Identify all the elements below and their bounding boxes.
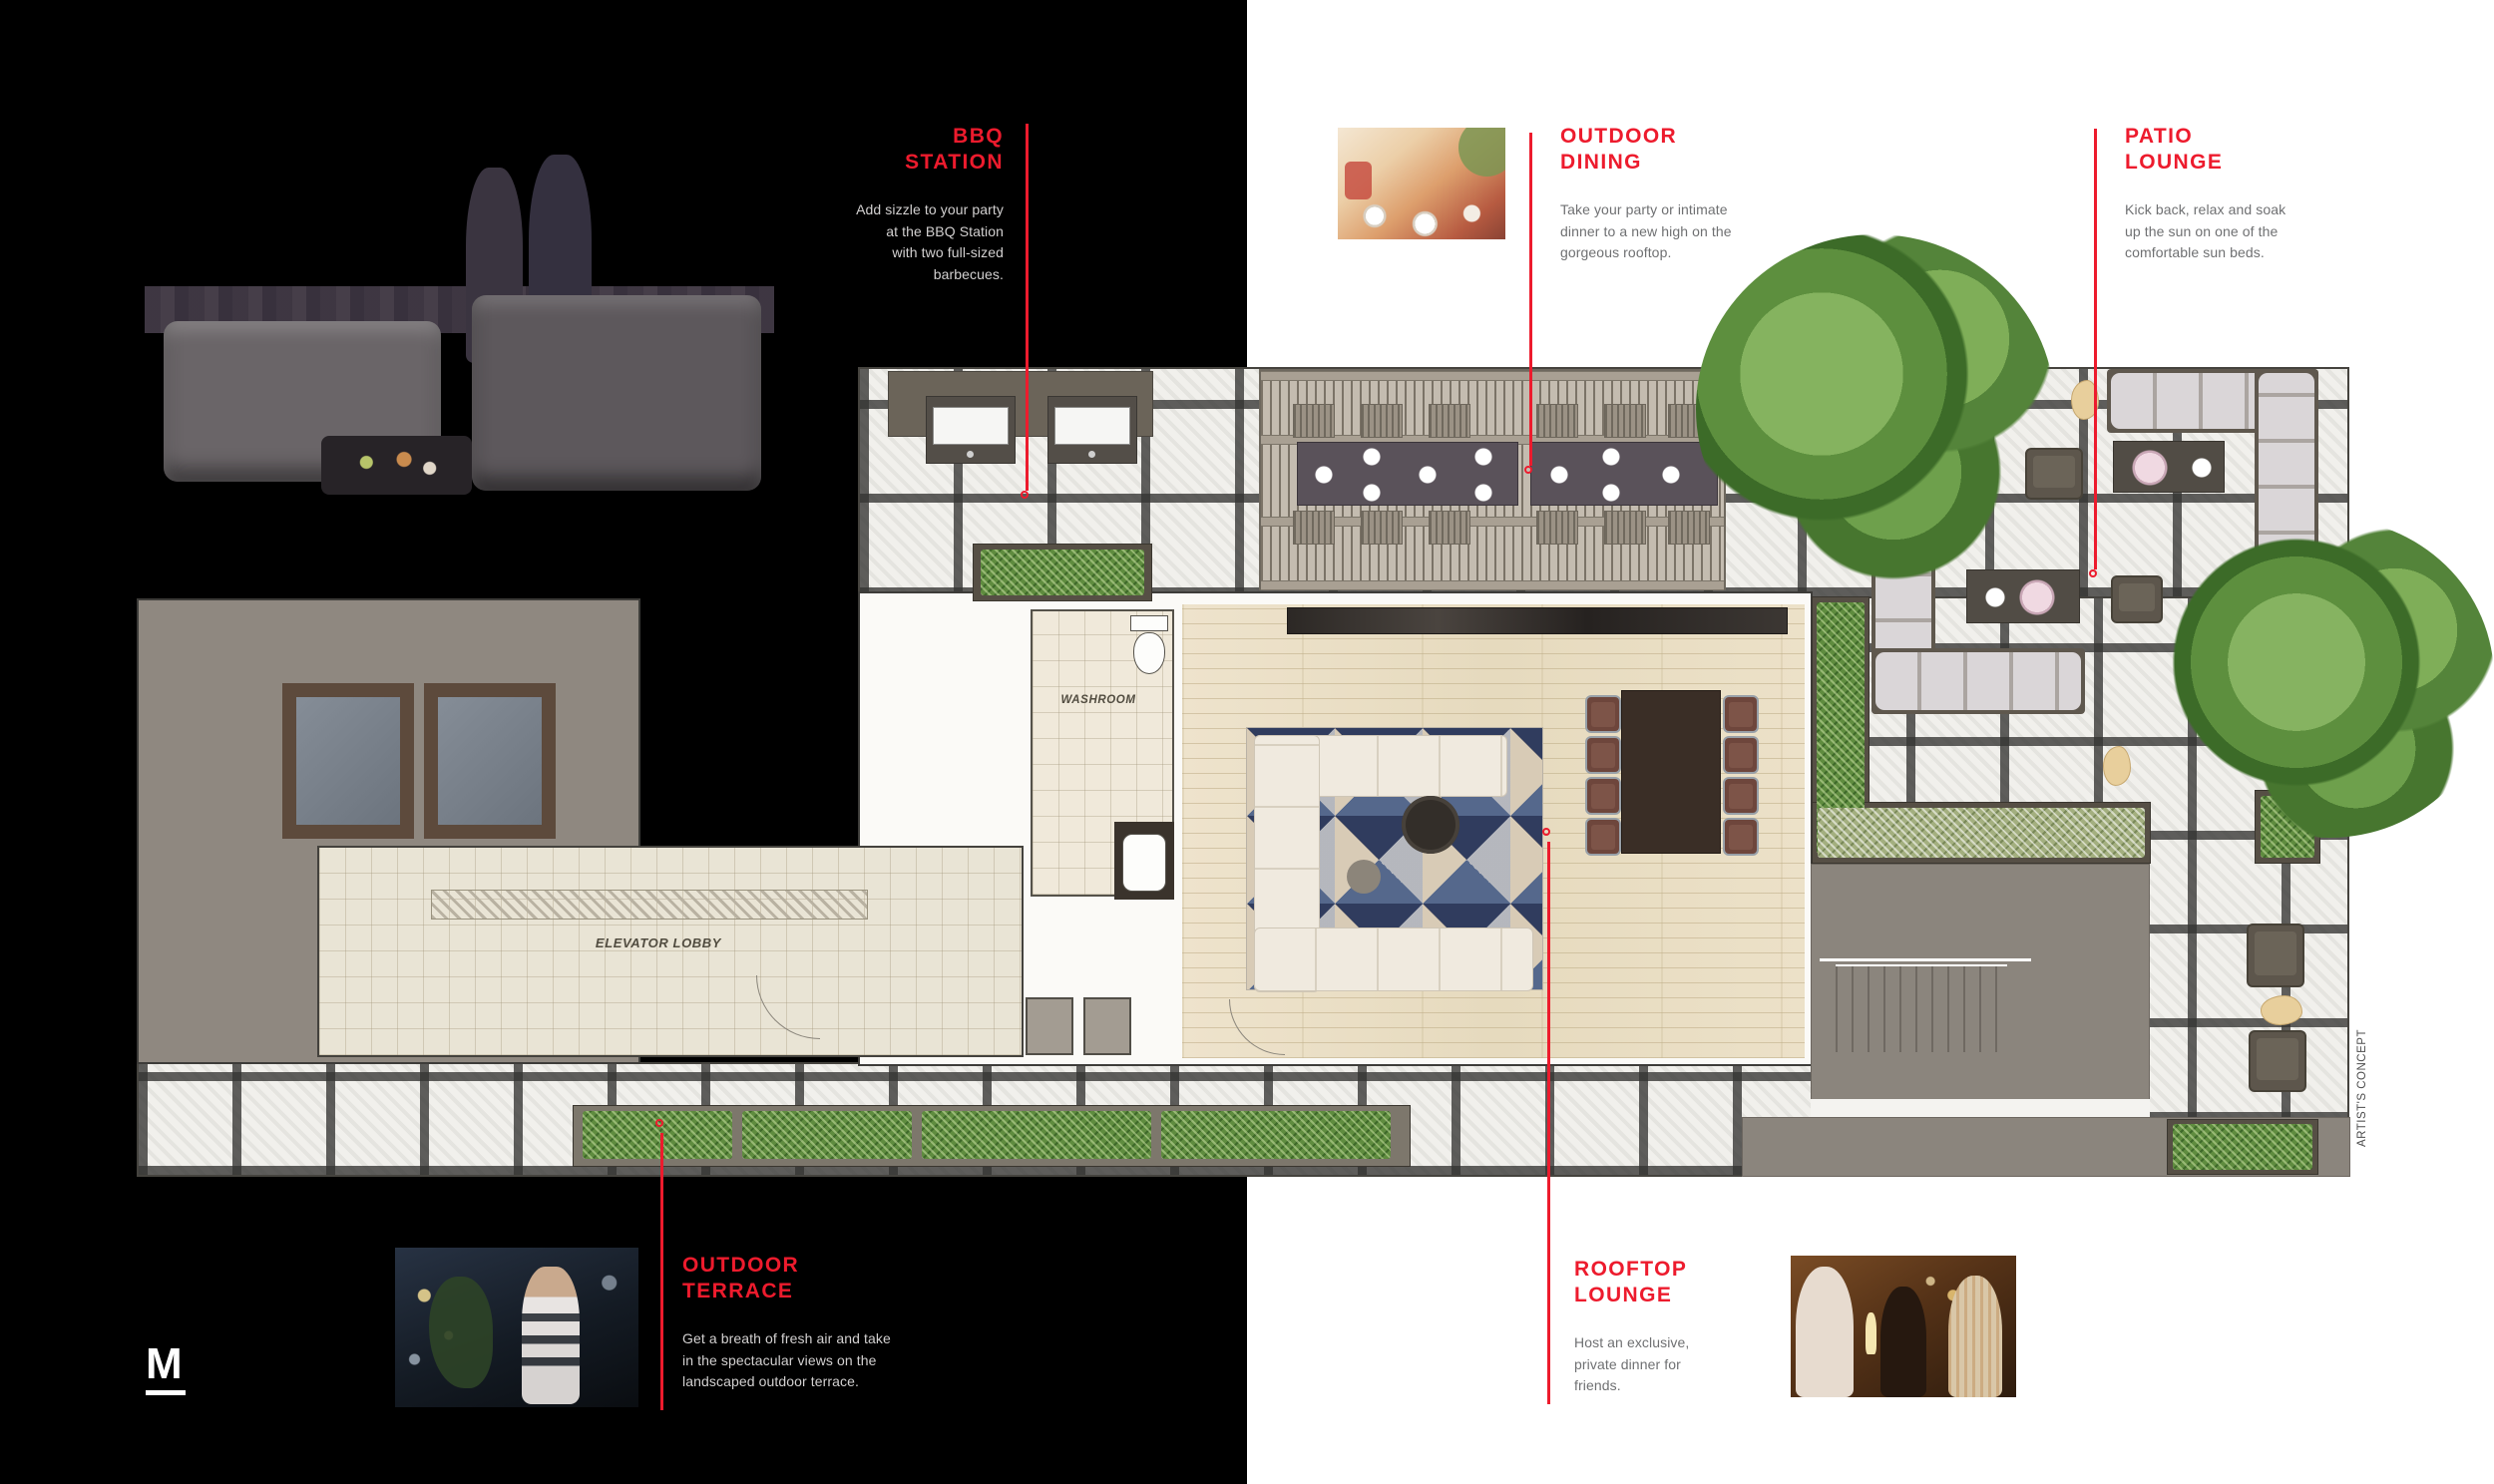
dining-chair [1587, 697, 1619, 731]
callout-title: ROOFTOP LOUNGE [1574, 1257, 1774, 1308]
artists-concept-note: ARTIST'S CONCEPT [2356, 1029, 2368, 1147]
toilet-tank [1130, 615, 1168, 631]
patio-sofa [1871, 648, 2085, 714]
planter-hedge [1161, 1111, 1391, 1159]
pergola-chair [1429, 404, 1470, 438]
bbq-grill-lid [933, 407, 1009, 445]
pergola-chair [1668, 511, 1710, 545]
dining-chair [1725, 697, 1757, 731]
paving-gap [1811, 1099, 2150, 1119]
brochure-page: ELEVATOR LOBBY WASHROOM [0, 0, 2494, 1484]
callout-endpoint [1524, 466, 1532, 474]
outdoor-terrace-photo [395, 1248, 638, 1407]
storage-room [1026, 997, 1073, 1055]
dining-chair [1725, 779, 1757, 813]
patio-armchair [2247, 924, 2304, 987]
pergola-dining-table [1297, 442, 1518, 506]
patio-table [1966, 569, 2080, 623]
dining-chair [1725, 738, 1757, 772]
callout-endpoint [1021, 491, 1029, 499]
callout-bbq-station: BBQ STATION Add sizzle to your party at … [788, 124, 1004, 285]
washroom-label: WASHROOM [1034, 694, 1163, 706]
planter-hedge [2173, 1124, 2312, 1170]
bbq-grill [1047, 396, 1137, 464]
callout-endpoint [2089, 569, 2097, 577]
flowering-hedge [1818, 808, 2145, 858]
side-stool [2261, 995, 2302, 1025]
pergola-chair [1293, 404, 1335, 438]
bbq-grill-lid [1054, 407, 1130, 445]
callout-endpoint [655, 1119, 663, 1127]
pergola-chair [1604, 404, 1646, 438]
brand-logo-underline [146, 1390, 186, 1395]
pergola-beam [1261, 371, 1724, 381]
callout-title: PATIO LOUNGE [2125, 124, 2309, 176]
callout-outdoor-dining: OUTDOOR DINING Take your party or intima… [1560, 124, 1750, 264]
photo-coffee-table [321, 436, 472, 496]
coffee-table-round [1402, 796, 1459, 854]
roof-edge-line [1820, 958, 2031, 961]
kitchen-counter [1287, 607, 1788, 634]
photo-figure [1948, 1276, 2002, 1397]
outdoor-dining-photo [1338, 128, 1505, 239]
callout-leader-line [1026, 124, 1029, 491]
planter-hedge [981, 550, 1144, 595]
dining-chair [1587, 779, 1619, 813]
photo-sofa [472, 295, 761, 491]
callout-body: Kick back, relax and soak up the sun on … [2125, 199, 2309, 264]
pergola-beam [1261, 580, 1724, 590]
photo-plant [429, 1277, 492, 1388]
photo-figure [1796, 1267, 1855, 1397]
toilet-bowl [1133, 632, 1165, 674]
photo-chair [1345, 162, 1372, 199]
photo-wine-glass [1866, 1312, 1876, 1355]
callout-rooftop-lounge: ROOFTOP LOUNGE Host an exclusive, privat… [1574, 1257, 1774, 1397]
callout-leader-line [660, 1133, 663, 1410]
dining-chair [1587, 738, 1619, 772]
washroom-sink [1122, 834, 1166, 892]
pergola-chair [1361, 511, 1403, 545]
bbq-grill-knob [1088, 451, 1095, 458]
pergola-chair [1536, 511, 1578, 545]
elevator-lobby-label: ELEVATOR LOBBY [559, 935, 758, 950]
tree-canopy [2165, 519, 2494, 838]
planter-hedge [742, 1111, 912, 1159]
callout-title: BBQ STATION [788, 124, 1004, 176]
callout-patio-lounge: PATIO LOUNGE Kick back, relax and soak u… [2125, 124, 2309, 264]
callout-outdoor-terrace: OUTDOOR TERRACE Get a breath of fresh ai… [682, 1253, 942, 1393]
dining-chair [1725, 820, 1757, 854]
staircase [1836, 964, 2007, 1052]
callout-body: Take your party or intimate dinner to a … [1560, 199, 1750, 264]
dining-table [1621, 690, 1721, 854]
sectional-sofa-arm [1254, 927, 1533, 991]
dining-chair [1587, 820, 1619, 854]
floor-pouf [2103, 746, 2131, 786]
pergola-chair [1361, 404, 1403, 438]
callout-leader-line [2094, 129, 2097, 569]
photo-figure [522, 1267, 581, 1404]
bbq-grill-knob [967, 451, 974, 458]
roof-deck [1811, 864, 2150, 1103]
pergola-chair [1604, 511, 1646, 545]
photo-figure [1880, 1287, 1925, 1397]
pergola-chair [1429, 511, 1470, 545]
photo-plant [1458, 128, 1505, 177]
callout-body: Add sizzle to your party at the BBQ Stat… [788, 199, 1004, 285]
callout-body: Get a breath of fresh air and take in th… [682, 1328, 942, 1393]
rooftop-sunset-photo [145, 100, 774, 525]
pergola-dining-table [1530, 442, 1718, 506]
sofa-cushions [1875, 652, 2081, 710]
patio-table [2113, 441, 2225, 493]
callout-title: OUTDOOR TERRACE [682, 1253, 942, 1304]
callout-body: Host an exclusive, private dinner for fr… [1574, 1332, 1774, 1397]
callout-leader-line [1529, 133, 1532, 466]
tree-canopy [1696, 234, 2055, 583]
callout-endpoint [1542, 828, 1550, 836]
storage-room [1083, 997, 1131, 1055]
brand-logo-m: M [146, 1344, 183, 1384]
rooftop-lounge-photo [1791, 1256, 2016, 1397]
callout-leader-line [1547, 842, 1550, 1404]
pergola-chair [1536, 404, 1578, 438]
planter-hedge [922, 1111, 1151, 1159]
patio-armchair [2111, 575, 2163, 623]
callout-title: OUTDOOR DINING [1560, 124, 1750, 176]
ottoman-round [1347, 860, 1381, 894]
elevator-shaft [282, 683, 414, 839]
patio-armchair [2249, 1030, 2306, 1092]
lobby-hatch-band [431, 890, 868, 920]
elevator-shaft [424, 683, 556, 839]
bbq-grill [926, 396, 1016, 464]
elevator-lobby-floor [317, 846, 1024, 1057]
pergola-chair [1293, 511, 1335, 545]
